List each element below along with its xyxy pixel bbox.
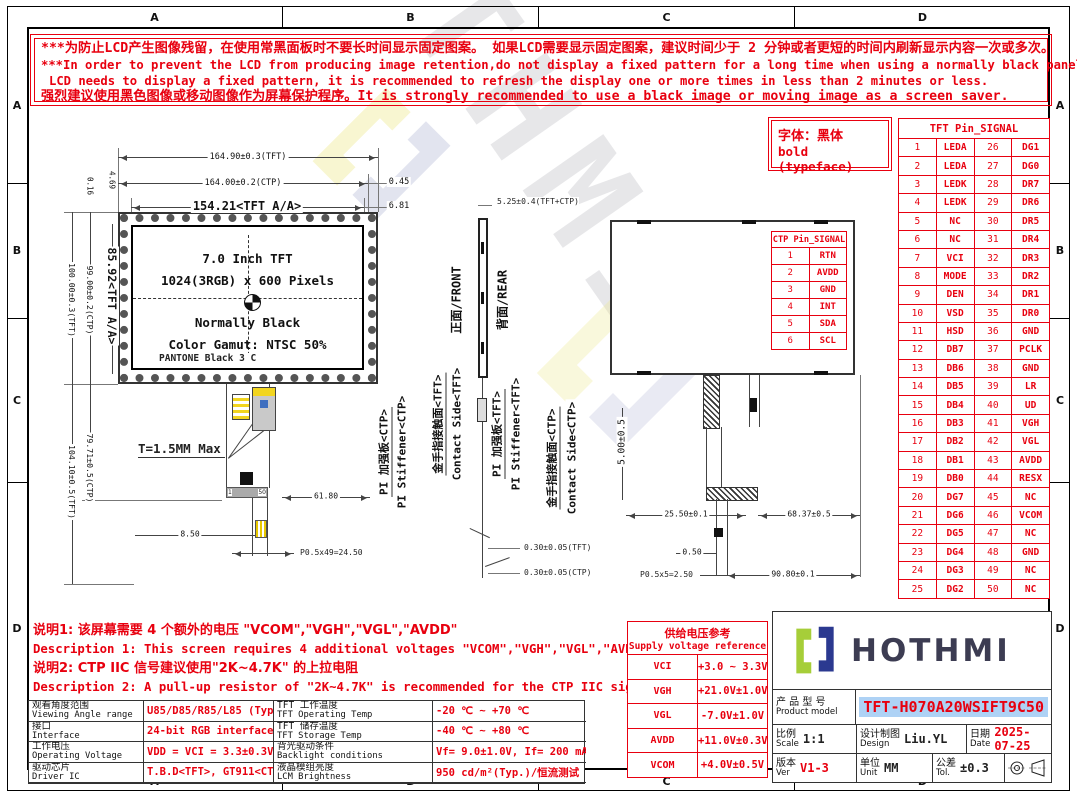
dim-ctp-width: 164.00±0.2(CTP) xyxy=(203,178,284,188)
ctp-pin-row: 4 INT xyxy=(772,299,847,316)
note-line: Description 1: This screen requires 4 ad… xyxy=(33,640,662,659)
tft-stiffener-zh: PI 加强板<TFT> xyxy=(489,389,506,479)
ctp-pin-row: 5 SDA xyxy=(772,316,847,333)
supply-row: VCOM +4.0V±0.5V xyxy=(628,753,768,778)
note-line: 说明2: CTP IIC 信号建议使用"2K~4.7K" 的上拉电阻 xyxy=(33,659,662,678)
scale-row: 比例 Scale 1:1 设计制图 Design Liu.YL 日期 Date … xyxy=(773,724,1051,753)
fpc-component xyxy=(232,394,250,420)
dim-2550: 25.50±0.1 xyxy=(662,510,709,519)
ctp-pin-row: 1 RTN xyxy=(772,248,847,265)
front-view-resolution-text: 1024(3RGB) x 600 Pixels xyxy=(133,273,362,288)
side-view-stack xyxy=(478,218,488,378)
note-line: 说明1: 该屏幕需要 4 个额外的电压 "VCOM","VGH","VGL","… xyxy=(33,621,662,640)
unit-value: MM xyxy=(884,761,898,775)
tol-label-en: Tol. xyxy=(936,769,956,778)
pin-50-label: 50 xyxy=(258,489,266,496)
tft-pin-row: 10 VSD 35 DR0 xyxy=(899,304,1050,322)
fpc-gold-fingers xyxy=(255,520,267,538)
dim-pitch-rear: P0.5x5=2.50 xyxy=(640,570,693,579)
side-view-rear-label: 背面/REAR xyxy=(494,268,511,332)
dim-045: 0.45 xyxy=(387,177,411,187)
dim-ctp-height: 99.00±0.2(CTP) xyxy=(85,264,95,335)
tft-pin-row: 14 DB5 39 LR xyxy=(899,378,1050,396)
dim-tft-height: 100.00±0.3(TFT) xyxy=(67,262,77,338)
brand-row: HOTHMI xyxy=(773,612,1051,689)
zone-letters-right: ABCD xyxy=(1050,27,1070,770)
rear-tft-fpc-hatch xyxy=(703,375,720,429)
tft-pin-row: 18 DB1 43 AVDD xyxy=(899,451,1050,469)
ver-label-en: Ver xyxy=(776,769,796,778)
dim-6180: 61.80 xyxy=(312,492,340,501)
date-label-en: Date xyxy=(970,740,990,749)
title-block: HOTHMI 产 品 型 号 Product model TFT-H070A20… xyxy=(772,611,1052,783)
typeface-note: 字体：黑体 bold (typeface) xyxy=(771,120,889,168)
date-value: 2025-07-25 xyxy=(994,725,1048,753)
rear-fpc-chip xyxy=(714,528,723,537)
dim-active-area-width: 154.21<TFT A/A> xyxy=(191,199,303,213)
model-label-en: Product model xyxy=(776,708,837,717)
thickness-label: T=1.5MM Max xyxy=(138,441,225,458)
contact-side-ctp-en: Contact Side<CTP> xyxy=(566,400,579,517)
tft-pin-row: 7 VCI 32 DR3 xyxy=(899,249,1050,267)
supply-table-title-zh: 供给电压参考 xyxy=(628,625,767,641)
lcd-retention-warning: ***为防止LCD产生图像残留，在使用常黑面板时不要长时间显示固定图案。 如果L… xyxy=(30,34,1052,106)
tft-pin-row: 19 DB0 44 RESX xyxy=(899,470,1050,488)
product-model-value: TFT-H070A20WSIFT9C50 xyxy=(859,697,1048,717)
model-row: 产 品 型 号 Product model TFT-H070A20WSIFT9C… xyxy=(773,689,1051,724)
dim-tft-width: 164.90±0.3(TFT) xyxy=(208,152,289,162)
tft-pin-row: 13 DB6 38 GND xyxy=(899,359,1050,377)
design-label-en: Design xyxy=(860,740,900,749)
zone-letters-left: ABCD xyxy=(7,27,27,770)
supply-voltage-table: 供给电压参考 Supply voltage reference VCI +3.0… xyxy=(627,621,768,778)
dim-500: 5.00±0.5 xyxy=(617,417,628,467)
front-view-ctp-glass: 7.0 Inch TFT 1024(3RGB) x 600 Pixels Nor… xyxy=(118,212,378,384)
dim-total-thickness: 5.25±0.4(TFT+CTP) xyxy=(497,197,579,206)
brand-name: HOTHMI xyxy=(851,633,1011,669)
supply-row: VGL -7.0V±1.0V xyxy=(628,704,768,729)
rear-fpc-narrow-tail xyxy=(716,499,728,575)
tft-pin-row: 3 LEDK 28 DR7 xyxy=(899,175,1050,193)
tft-pin-row: 4 LEDK 29 DR6 xyxy=(899,194,1050,212)
front-view-active-area: 7.0 Inch TFT 1024(3RGB) x 600 Pixels Nor… xyxy=(131,225,364,370)
dim-ctp-total-height: 79.71±0.5(CTP) xyxy=(85,432,95,503)
side-view-front-label: 正面/FRONT xyxy=(448,264,465,335)
scale-label-en: Scale xyxy=(776,740,799,749)
engineering-drawing-sheet: HOTHMI ABCD ABCD ABCD ABCD ***为防止LCD产生图像… xyxy=(0,0,1077,797)
tft-pin-row: 12 DB7 37 PCLK xyxy=(899,341,1050,359)
ver-value: V1-3 xyxy=(800,761,829,775)
tft-pin-row: 1 LEDA 26 DG1 xyxy=(899,139,1050,157)
dim-pitch-front: P0.5x49=24.50 xyxy=(300,548,363,557)
typeface-note-zh: 字体：黑体 xyxy=(778,125,882,144)
third-angle-projection-icon xyxy=(1008,758,1048,778)
tft-pin-row: 21 DG6 46 VCOM xyxy=(899,506,1050,524)
tft-pin-row: 20 DG7 45 NC xyxy=(899,488,1050,506)
dim-681: 6.81 xyxy=(387,201,411,211)
version-row: 版本 Ver V1-3 单位 Unit MM 公差 Tol. ±0.3 xyxy=(773,753,1051,782)
tft-pin-row: 22 DG5 47 NC xyxy=(899,525,1050,543)
warning-line: 强烈建议使用黑色图像或移动图像作为屏幕保护程序。It is strongly r… xyxy=(41,89,1041,105)
supply-row: VGH +21.0V±1.0V xyxy=(628,679,768,704)
hothmi-logo-icon xyxy=(787,623,843,679)
rear-fpc-stiffener-bar xyxy=(706,487,758,501)
tft-pin-table-title: TFT Pin_SIGNAL xyxy=(899,119,1050,139)
dim-6837: 68.37±0.5 xyxy=(785,510,832,519)
tft-pin-row: 24 DG3 49 NC xyxy=(899,561,1050,579)
contact-side-ctp-zh: 金手指接触面<CTP> xyxy=(544,406,561,509)
center-mark-icon xyxy=(244,294,261,311)
fpc-component xyxy=(252,387,276,431)
tft-pin-row: 15 DB4 40 UD xyxy=(899,396,1050,414)
front-view-size-text: 7.0 Inch TFT xyxy=(133,251,362,266)
front-view-mode-text: Normally Black xyxy=(133,315,362,330)
contact-side-tft-zh: 金手指接触面<TFT> xyxy=(430,372,447,475)
tft-pin-table: TFT Pin_SIGNAL 1 LEDA 26 DG1 2 LEDA 27 D… xyxy=(898,118,1050,599)
note-line: Description 2: A pull-up resistor of "2K… xyxy=(33,678,662,697)
design-value: Liu.YL xyxy=(904,732,947,746)
ctp-pin-row: 6 SCL xyxy=(772,333,847,350)
ctp-pin-row: 3 GND xyxy=(772,282,847,299)
dim-016: 0.16 xyxy=(86,176,95,196)
supply-row: VCI +3.0 ~ 3.3V xyxy=(628,655,768,680)
dim-050: 0.50 xyxy=(680,548,703,557)
dim-active-area-height: 85.92<TFT A/A> xyxy=(105,247,119,346)
typeface-note-en: bold (typeface) xyxy=(778,144,882,174)
tft-pin-row: 9 DEN 34 DR1 xyxy=(899,286,1050,304)
tft-pin-row: 17 DB2 42 VGL xyxy=(899,433,1050,451)
dim-469: 4.69 xyxy=(108,170,117,190)
side-view-stiffener xyxy=(477,398,487,422)
supply-table-title-en: Supply voltage reference xyxy=(628,641,767,652)
fpc-connector-bar: 1 50 xyxy=(226,487,268,498)
fpc-ic-chip xyxy=(240,472,253,485)
tft-pin-row: 23 DG4 48 GND xyxy=(899,543,1050,561)
tft-pin-row: 25 DG2 50 NC xyxy=(899,580,1050,598)
dim-tft-total-height: 104.10±0.5(TFT) xyxy=(67,444,77,520)
pantone-label: PANTONE Black 3 C xyxy=(159,353,256,364)
spec-table: 观看角度范围Viewing Angle range U85/D85/R85/L8… xyxy=(28,700,585,784)
contact-side-tft-en: Contact Side<TFT> xyxy=(451,366,464,483)
tft-pin-row: 16 DB3 41 VGH xyxy=(899,414,1050,432)
tft-pin-row: 6 NC 31 DR4 xyxy=(899,230,1050,248)
ctp-pin-row: 2 AVDD xyxy=(772,265,847,282)
warning-line: ***为防止LCD产生图像残留，在使用常黑面板时不要长时间显示固定图案。 如果L… xyxy=(41,41,1041,57)
notes-block: 说明1: 该屏幕需要 4 个额外的电压 "VCOM","VGH","VGL","… xyxy=(33,621,662,697)
supply-row: AVDD +11.0V±0.3V xyxy=(628,728,768,753)
front-view-gamut-text: Color Gamut: NTSC 50% xyxy=(133,337,362,352)
ctp-pin-table-title: CTP Pin_SIGNAL xyxy=(772,232,847,248)
ctp-stiffener-label-en: PI Stiffener<CTP> xyxy=(396,394,409,511)
dim-850: 8.50 xyxy=(178,530,201,539)
tft-pin-row: 11 HSD 36 GND xyxy=(899,322,1050,340)
ctp-stiffener-label-zh: PI 加强板<CTP> xyxy=(376,407,393,497)
rear-tft-fpc-tail xyxy=(706,427,722,487)
rear-ctp-fpc-tip xyxy=(750,398,757,412)
tft-pin-row: 8 MODE 33 DR2 xyxy=(899,267,1050,285)
tft-stiffener-en: PI Stiffener<TFT> xyxy=(510,376,523,493)
warning-line: ***In order to prevent the LCD from prod… xyxy=(41,57,1041,73)
zone-letters-top: ABCD xyxy=(27,7,1050,27)
dim-fpc-ctp-thickness: 0.30±0.05(CTP) xyxy=(524,568,591,577)
pin-1-label: 1 xyxy=(228,489,232,496)
tol-value: ±0.3 xyxy=(960,761,989,775)
dim-fpc-tft-thickness: 0.30±0.05(TFT) xyxy=(524,543,591,552)
tft-pin-row: 2 LEDA 27 DG0 xyxy=(899,157,1050,175)
scale-value: 1:1 xyxy=(803,732,825,746)
unit-label-en: Unit xyxy=(860,769,880,778)
tft-pin-row: 5 NC 30 DR5 xyxy=(899,212,1050,230)
ctp-pin-table: CTP Pin_SIGNAL 1 RTN 2 AVDD 3 GND 4 INT … xyxy=(771,231,847,350)
warning-line: LCD needs to display a fixed pattern, it… xyxy=(41,73,1041,89)
dim-9080: 90.80±0.1 xyxy=(769,570,816,579)
